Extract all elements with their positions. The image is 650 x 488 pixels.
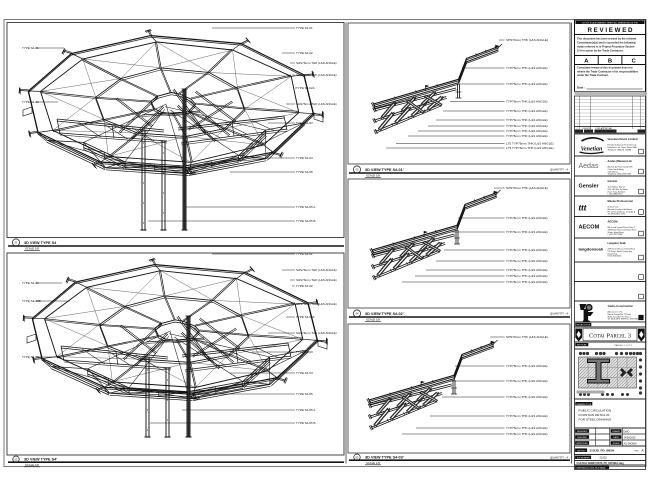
- svg-text:ttt: ttt: [579, 204, 587, 214]
- svg-text:TYP76mm THK (L&S ANGLE): TYP76mm THK (L&S ANGLE): [506, 129, 548, 133]
- svg-text:TYPE S4-02B: TYPE S4-02B: [22, 299, 41, 303]
- svg-text:SHS76mm THK (L&S ANGLE): SHS76mm THK (L&S ANGLE): [296, 268, 337, 272]
- svg-text:Consultants(s)(s) and is ac: Consultants(s)(s) and is accorded the fo…: [577, 41, 636, 45]
- svg-text:-: -: [597, 436, 598, 439]
- svg-text:TYP76mm THK (L&S ANGLE): TYP76mm THK (L&S ANGLE): [506, 268, 548, 272]
- svg-text:TYPE S4-01: TYPE S4-01: [296, 26, 313, 30]
- svg-text:TYP76mm THK (L&S ANGLE): TYP76mm THK (L&S ANGLE): [506, 66, 548, 70]
- svg-text:TYPE S4-05: TYPE S4-05: [296, 392, 313, 396]
- svg-text:SHS76mm THK (L&S ANGLE): SHS76mm THK (L&S ANGLE): [506, 186, 548, 190]
- svg-text:SCALE 1/8: SCALE 1/8: [25, 247, 39, 251]
- svg-text:FOR STEEL DRAWING: FOR STEEL DRAWING: [579, 418, 612, 422]
- svg-text:TYP76mm THK (L&S ANGLE): TYP76mm THK (L&S ANGLE): [506, 82, 548, 86]
- svg-text:SHS76mm THK (L&S ANGLE): SHS76mm THK (L&S ANGLE): [296, 302, 337, 306]
- svg-text:REV: REV: [635, 450, 640, 452]
- svg-text:TYPE S4-03: TYPE S4-03: [296, 350, 313, 354]
- svg-text:TYP76mm THK (L&S ANGLE): TYP76mm THK (L&S ANGLE): [506, 248, 548, 252]
- svg-text:AECOM: AECOM: [579, 225, 600, 231]
- svg-text:3D VIEW TYPE S4': 3D VIEW TYPE S4': [24, 458, 57, 462]
- svg-text:CHECKED: CHECKED: [577, 437, 587, 439]
- svg-text:TYP76mm THK (L&S ANGLE): TYP76mm THK (L&S ANGLE): [506, 280, 548, 284]
- svg-text:-: -: [597, 430, 598, 433]
- svg-text:DWG NO: DWG NO: [577, 450, 586, 452]
- svg-text:3D VIEW TYPE S4-03': 3D VIEW TYPE S4-03': [365, 456, 404, 460]
- svg-text:Venetian: Venetian: [581, 147, 603, 153]
- svg-text:Tel: (853) 2870 3818 Fax: 287: Tel: (853) 2870 3818 Fax: 2870 3816: [608, 319, 639, 321]
- svg-text:SHS76mm THK (L&S ANGLE): SHS76mm THK (L&S ANGLE): [296, 61, 337, 65]
- svg-text:PARCEL 1, LOT 2: PARCEL 1, LOT 2: [615, 344, 633, 347]
- svg-text:SCALE 1/8: SCALE 1/8: [25, 463, 39, 467]
- svg-text:TYP76mm THK (L&S ANGLE): TYP76mm THK (L&S ANGLE): [506, 216, 548, 220]
- svg-text:3D VIEW TYPE S4-01': 3D VIEW TYPE S4-01': [365, 168, 404, 172]
- svg-text:3D VIEW TYPE S4: 3D VIEW TYPE S4: [24, 241, 57, 245]
- svg-text:QUANTITY : 4: QUANTITY : 4: [550, 455, 568, 459]
- svg-text:Venetian Orient Limited: Venetian Orient Limited: [608, 137, 638, 141]
- svg-text:Langdon Seah: Langdon Seah: [608, 241, 627, 245]
- svg-text:TYP76mm THK (L&S ANGLE): TYP76mm THK (L&S ANGLE): [506, 100, 548, 104]
- svg-text:Telephone: (853) 2833 1133: Telephone: (853) 2833 1133: [608, 174, 632, 176]
- svg-text:AS SHOWN: AS SHOWN: [624, 442, 637, 445]
- svg-text:TYP76mm THK (L&S ANGLE): TYP76mm THK (L&S ANGLE): [506, 395, 548, 399]
- svg-text:Gensler: Gensler: [608, 179, 618, 183]
- svg-text:05/06/15: 05/06/15: [583, 128, 592, 130]
- svg-text:Yaubo Construction: Yaubo Construction: [608, 304, 634, 308]
- svg-text:TYPE S4-04: TYPE S4-04: [296, 371, 313, 375]
- svg-text:status referred to in Proj: status referred to in Project Procedure …: [577, 45, 635, 49]
- svg-text:APPROVED: APPROVED: [577, 442, 589, 445]
- svg-text:FOR APPROVAL: FOR APPROVAL: [596, 127, 614, 130]
- svg-text:SHS76mm THK (L&S ANGLE): SHS76mm THK (L&S ANGLE): [296, 278, 337, 282]
- svg-text:TYP76mm THK (L&S ANGLE): TYP76mm THK (L&S ANGLE): [506, 134, 548, 138]
- svg-text:TYPE S4-05: TYPE S4-05: [296, 170, 313, 174]
- svg-text:TYP76mm THK (L&S ANGLE): TYP76mm THK (L&S ANGLE): [506, 379, 548, 383]
- svg-text:B: B: [608, 59, 612, 65]
- svg-text:TYPE S4-05 B: TYPE S4-05 B: [296, 219, 316, 223]
- svg-text:TYPE S4-04: TYPE S4-04: [296, 156, 313, 160]
- svg-text:t 852 2830 3500: t 852 2830 3500: [608, 255, 622, 258]
- svg-text:Aedas: Aedas: [579, 163, 599, 170]
- svg-text:TYPE S4-05 A: TYPE S4-05 A: [296, 408, 315, 412]
- svg-text:SCALE 1/8: SCALE 1/8: [366, 174, 380, 178]
- svg-text:Date :: Date :: [577, 86, 585, 90]
- svg-text:CAD FILE NAME:515UB_PD_S4STEEL: CAD FILE NAME:515UB_PD_S4STEEL.dwg: [577, 462, 625, 465]
- svg-text:DO NOT SCALE DRAWING. VERIFY A: DO NOT SCALE DRAWING. VERIFY ALL DIMENSI…: [582, 22, 639, 25]
- svg-text:Telephone: (853) 81 118888: Telephone: (853) 81 118888: [608, 149, 632, 151]
- svg-text:TYPE S4-01: TYPE S4-01: [22, 46, 39, 50]
- svg-text:JOB NUMBER: JOB NUMBER: [577, 457, 591, 459]
- svg-text:TYPE S4-01: TYPE S4-01: [296, 252, 313, 256]
- svg-text:TYP76mm THK (L&S ANGLE): TYP76mm THK (L&S ANGLE): [506, 118, 548, 122]
- svg-text:SCALE 1/8: SCALE 1/8: [366, 461, 380, 465]
- svg-text:TYPE S4-02A: TYPE S4-02A: [296, 86, 315, 90]
- svg-text:TYPE S4-03: TYPE S4-03: [22, 355, 39, 359]
- svg-text:SHS76mm THK (L&S ANGLE): SHS76mm THK (L&S ANGLE): [506, 38, 548, 42]
- svg-text:TYPE S4-02: TYPE S4-02: [296, 284, 313, 288]
- svg-text:COTAI PARCEL 3: COTAI PARCEL 3: [589, 333, 632, 340]
- svg-text:REFERENCE DWG FILE NAME: REFERENCE DWG FILE NAME: [577, 466, 607, 469]
- svg-text:TYP76mm THK (L&S ANGLE): TYP76mm THK (L&S ANGLE): [506, 414, 548, 418]
- svg-text:DESIGNED: DESIGNED: [577, 431, 588, 433]
- svg-text:relieve the Trade Contracto: relieve the Trade Contractor of its resp…: [577, 69, 639, 73]
- svg-text:-: -: [597, 442, 598, 445]
- svg-text:QUANTITY : 4: QUANTITY : 4: [550, 168, 568, 172]
- svg-text:SHS76mm THK (L&S ANGLE): SHS76mm THK (L&S ANGLE): [296, 102, 337, 106]
- svg-text:515UB_PD_8N3H: 515UB_PD_8N3H: [590, 449, 615, 453]
- svg-text:QUANTITY : 4: QUANTITY : 4: [550, 312, 568, 316]
- svg-text:DWO: DWO: [624, 430, 630, 433]
- svg-text:TYPE S4-05 B: TYPE S4-05 B: [296, 421, 316, 425]
- svg-text:TYP76mm THK (L&S ANGLE): TYP76mm THK (L&S ANGLE): [506, 259, 548, 263]
- svg-text:R E V I E W E D: R E V I E W E D: [587, 27, 633, 34]
- svg-text:DATE: DATE: [613, 436, 619, 439]
- svg-text:TYPE S4-02: TYPE S4-02: [22, 100, 39, 104]
- svg-text:L75 TYP76mm THK (L&S ANGLE): L75 TYP76mm THK (L&S ANGLE): [506, 146, 554, 150]
- svg-text:SCALE 1/8: SCALE 1/8: [366, 318, 380, 322]
- svg-text:SCALE: SCALE: [613, 442, 620, 445]
- svg-text:TYP76mm THK (L&S ANGLE): TYP76mm THK (L&S ANGLE): [506, 432, 548, 436]
- svg-text:3D VIEW TYPE S4-02': 3D VIEW TYPE S4-02': [365, 312, 404, 316]
- svg-text:5.4 for action by the Tra: 5.4 for action by the Trade Contractor.: [577, 49, 624, 53]
- svg-text:KEY PLAN: KEY PLAN: [577, 344, 587, 347]
- svg-text:PROJECT TITLE: PROJECT TITLE: [576, 325, 591, 327]
- svg-text:Consultant review of this doc: Consultant review of this document does …: [577, 66, 633, 70]
- svg-text:TYP76mm THK (L&S ANGLE): TYP76mm THK (L&S ANGLE): [506, 124, 548, 128]
- svg-text:langdonseah: langdonseah: [579, 247, 604, 252]
- svg-text:TYP76mm THK (L&S ANGLE): TYP76mm THK (L&S ANGLE): [506, 364, 548, 368]
- svg-text:TYPE S4-02: TYPE S4-02: [296, 51, 313, 55]
- svg-text:SHS76mm THK (L&S ANGLE): SHS76mm THK (L&S ANGLE): [296, 73, 337, 77]
- svg-text:Tel: (853) 2871 5533: Tel: (853) 2871 5533: [608, 214, 625, 216]
- svg-text:AECOM: AECOM: [608, 220, 619, 224]
- svg-text:PUBLIC CIRCULATION: PUBLIC CIRCULATION: [579, 409, 612, 413]
- svg-text:DRAWING TITLE: DRAWING TITLE: [576, 403, 591, 406]
- svg-text:DRAWN: DRAWN: [612, 430, 620, 433]
- svg-text:Gensler: Gensler: [579, 184, 600, 190]
- svg-text:TYPE S4-03: TYPE S4-03: [296, 121, 313, 125]
- svg-text:TYPE S4-05 A: TYPE S4-05 A: [296, 205, 315, 209]
- svg-text:Aedas (Macau) Ltd.: Aedas (Macau) Ltd.: [608, 159, 633, 163]
- svg-text:TYP76mm THK (L&S ANGLE): TYP76mm THK (L&S ANGLE): [506, 274, 548, 278]
- svg-text:SHS76mm THK (L&S ANGLE): SHS76mm THK (L&S ANGLE): [506, 335, 548, 339]
- svg-text:SHS76mm THK (L&S ANGLE): SHS76mm THK (L&S ANGLE): [296, 331, 337, 335]
- svg-text:TYPE S4-02A: TYPE S4-02A: [296, 315, 315, 319]
- svg-text:14/03/2015: 14/03/2015: [624, 436, 637, 439]
- svg-text:t +852 2587 1988: t +852 2587 1988: [608, 233, 623, 236]
- svg-text:Macau Professional: Macau Professional: [608, 199, 633, 203]
- svg-text:under the Trade Contract.: under the Trade Contract.: [577, 73, 609, 77]
- svg-text:TYP76mm THK (L&S ANGLE): TYP76mm THK (L&S ANGLE): [506, 109, 548, 113]
- svg-text:TYPE S4-02: TYPE S4-02: [22, 281, 39, 285]
- svg-text:FOUNTAIN DETAIL 01: FOUNTAIN DETAIL 01: [579, 413, 611, 417]
- svg-text:This document has been revised: This document has been revised by the re…: [577, 37, 636, 41]
- svg-text:t +852.2868.9700: t +852.2868.9700: [608, 193, 623, 196]
- svg-text:TYP76mm THK (L&S ANGLE): TYP76mm THK (L&S ANGLE): [506, 230, 548, 234]
- svg-text:TYP76mm THK (L&S ANGLE): TYP76mm THK (L&S ANGLE): [506, 426, 548, 430]
- svg-text:21520: 21520: [600, 456, 608, 460]
- svg-text:L75 TYP76mm THK (L&S ANGLE): L75 TYP76mm THK (L&S ANGLE): [506, 142, 554, 146]
